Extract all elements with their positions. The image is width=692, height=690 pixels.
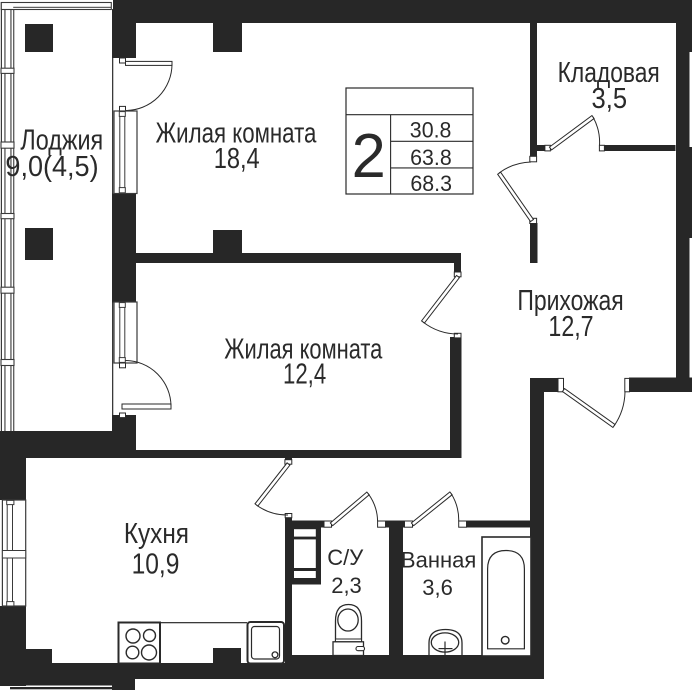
svg-text:30.8: 30.8 xyxy=(410,117,452,143)
svg-text:2,3: 2,3 xyxy=(331,573,362,598)
svg-text:Кухня: Кухня xyxy=(124,517,189,549)
svg-text:18,4: 18,4 xyxy=(214,141,260,174)
svg-text:С/У: С/У xyxy=(327,545,364,570)
svg-text:68.3: 68.3 xyxy=(410,171,452,197)
svg-text:Ванная: Ванная xyxy=(401,547,476,572)
svg-text:3,6: 3,6 xyxy=(422,575,453,600)
svg-text:10,9: 10,9 xyxy=(132,548,180,580)
svg-text:12,4: 12,4 xyxy=(283,359,326,390)
svg-text:3,5: 3,5 xyxy=(592,81,627,114)
svg-text:63.8: 63.8 xyxy=(410,144,452,170)
svg-text:2: 2 xyxy=(352,122,386,191)
svg-text:9,0(4,5): 9,0(4,5) xyxy=(5,150,98,182)
svg-text:12,7: 12,7 xyxy=(548,309,593,342)
